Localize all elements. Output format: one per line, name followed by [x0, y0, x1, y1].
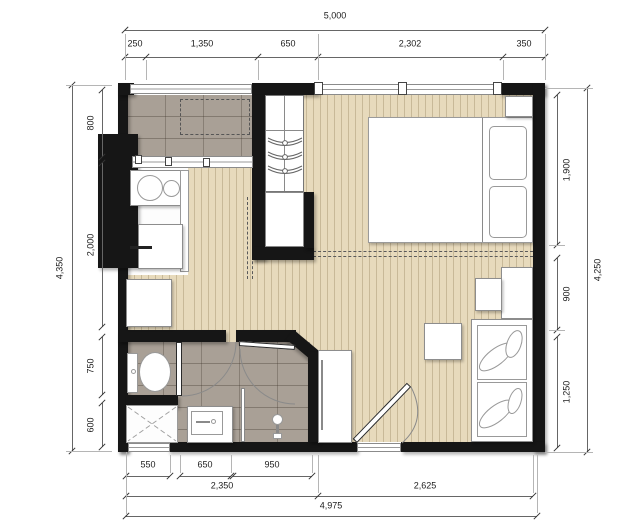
- dim-top-seg: 350: [516, 40, 531, 49]
- extension-line: [318, 455, 319, 493]
- dim-left-seg: 600: [87, 417, 96, 432]
- dim-line: [233, 476, 312, 477]
- extension-line: [545, 88, 593, 89]
- dim-line: [125, 30, 545, 31]
- dim-line: [72, 85, 73, 451]
- dim-line: [587, 88, 588, 452]
- dim-line: [126, 476, 170, 477]
- door-swing-arcs: [0, 0, 620, 532]
- dim-bottom-seg: 950: [264, 461, 279, 470]
- dim-top-overall: 5,000: [324, 12, 347, 21]
- extension-line: [66, 451, 112, 452]
- dim-bottom-overall: 4,975: [320, 502, 343, 511]
- dim-line: [126, 516, 537, 517]
- extension-line: [146, 60, 147, 80]
- extension-line: [126, 452, 127, 514]
- dim-line: [180, 476, 231, 477]
- dim-bottom-seg: 650: [197, 461, 212, 470]
- extension-line: [549, 245, 565, 246]
- dim-left-seg: 2,000: [87, 234, 96, 257]
- dim-left-seg: 750: [87, 358, 96, 373]
- dim-bottom-mid: 2,625: [414, 482, 437, 491]
- dim-top-seg: 1,350: [191, 40, 214, 49]
- dim-bottom-seg: 550: [140, 461, 155, 470]
- dim-line: [102, 403, 103, 447]
- dim-right-seg: 1,900: [563, 159, 572, 182]
- dim-top-seg: 2,302: [399, 40, 422, 49]
- dim-left-overall: 4,350: [56, 257, 65, 280]
- dim-right-seg: 1,250: [563, 381, 572, 404]
- extension-line: [533, 455, 534, 493]
- dim-line: [557, 258, 558, 330]
- extension-line: [318, 34, 319, 80]
- dim-line: [557, 337, 558, 448]
- extension-line: [545, 34, 546, 80]
- extension-line: [503, 60, 504, 80]
- extension-line: [258, 60, 259, 80]
- extension-line: [549, 330, 565, 331]
- dim-top-seg: 650: [280, 40, 295, 49]
- dim-right-overall: 4,250: [594, 259, 603, 282]
- extension-line: [545, 452, 593, 453]
- dim-line: [102, 163, 103, 327]
- dim-line: [126, 496, 533, 497]
- dim-top-seg: 250: [127, 40, 142, 49]
- dim-line: [102, 90, 103, 157]
- dim-bottom-mid: 2,350: [211, 482, 234, 491]
- floor-plan-canvas: 5,000 250 1,350 650 2,302 350 4,350 800 …: [0, 0, 620, 532]
- dim-right-seg: 900: [563, 286, 572, 301]
- dim-line: [557, 95, 558, 245]
- extension-line: [125, 34, 126, 80]
- dim-line: [125, 57, 545, 58]
- extension-line: [180, 455, 181, 473]
- extension-line: [312, 455, 313, 473]
- extension-line: [170, 455, 171, 473]
- extension-line: [231, 455, 232, 473]
- dim-line: [102, 337, 103, 395]
- extension-line: [537, 455, 538, 513]
- dim-left-seg: 800: [87, 115, 96, 130]
- extension-line: [66, 85, 112, 86]
